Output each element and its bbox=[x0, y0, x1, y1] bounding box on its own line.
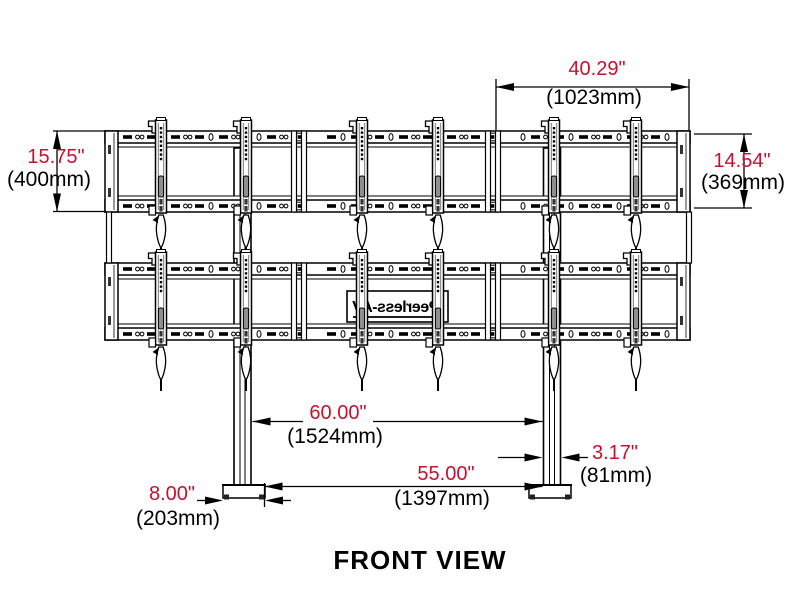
front-view-drawing-page: Peerless-AV 15.75" (400mm) 40.29" (1023m… bbox=[0, 0, 800, 600]
dim-left-height: 15.75" (400mm) bbox=[7, 131, 106, 212]
dim-base-width-inches: 8.00" bbox=[149, 483, 195, 505]
dim-left-height-mm: (400mm) bbox=[7, 168, 91, 191]
left-base bbox=[222, 485, 266, 500]
dim-top-width: 40.29" (1023mm) bbox=[496, 58, 689, 130]
dim-right-height-inches: 14.54" bbox=[713, 150, 770, 172]
dim-pole-width-mm: (81mm) bbox=[580, 464, 652, 487]
dim-pole-span: 60.00" (1524mm) bbox=[253, 402, 543, 448]
dim-base-width: 8.00" (203mm) bbox=[136, 483, 291, 530]
dim-right-height-mm: (369mm) bbox=[701, 171, 785, 194]
mount-technical-drawing: Peerless-AV 15.75" (400mm) 40.29" (1023m… bbox=[0, 0, 800, 600]
dim-base-span: 55.00" (1397mm) bbox=[265, 463, 543, 510]
dim-right-height: 14.54" (369mm) bbox=[694, 134, 785, 208]
dim-top-width-inches: 40.29" bbox=[568, 58, 625, 80]
dim-pole-span-inches: 60.00" bbox=[309, 402, 366, 424]
dim-pole-width: 3.17" (81mm) bbox=[498, 442, 652, 487]
dim-pole-width-inches: 3.17" bbox=[592, 442, 638, 464]
dim-base-width-mm: (203mm) bbox=[136, 507, 220, 530]
view-title: FRONT VIEW bbox=[333, 545, 506, 575]
dim-base-span-mm: (1397mm) bbox=[394, 487, 490, 510]
display-adapter-brackets bbox=[149, 118, 642, 392]
dim-left-height-inches: 15.75" bbox=[27, 146, 84, 168]
dim-pole-span-mm: (1524mm) bbox=[287, 425, 383, 448]
dim-base-span-inches: 55.00" bbox=[417, 463, 474, 485]
dim-top-width-mm: (1023mm) bbox=[546, 86, 642, 109]
